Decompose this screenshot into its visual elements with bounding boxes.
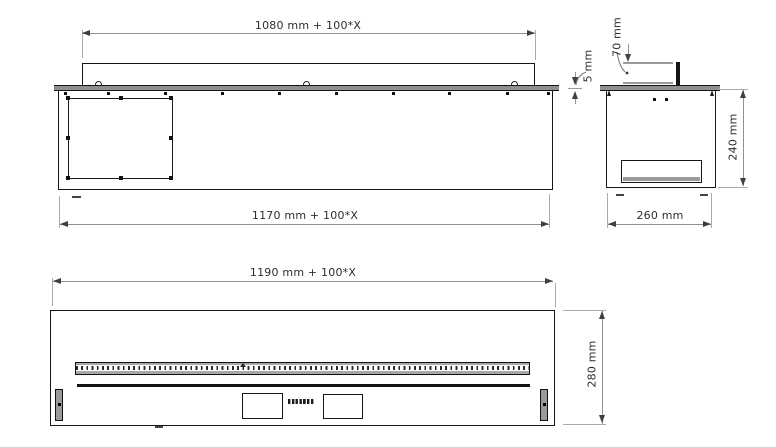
dimension-line-front-width [53, 281, 553, 282]
hinge-bump [95, 81, 102, 85]
access-panel [68, 98, 173, 179]
arrowhead-up [740, 90, 746, 98]
flame-port-row [76, 366, 529, 370]
arrowhead-right [541, 221, 549, 227]
foot-mark [616, 194, 624, 196]
arrowhead-down [740, 178, 746, 186]
foot-mark [72, 196, 81, 198]
screen-plate-top [623, 62, 673, 64]
panel-screw [169, 96, 173, 100]
screw-dot [506, 92, 509, 95]
screw-dot [64, 92, 67, 95]
dim-label-body-width: 1170 mm + 100*X [252, 209, 358, 222]
control-box-right [323, 394, 363, 419]
dim-label-flange-thickness: 5 mm [582, 50, 595, 83]
dim-label-body-depth: 260 mm [636, 209, 683, 222]
dim-label-body-height: 240 mm [727, 113, 740, 160]
screw-dot [164, 92, 167, 95]
dimension-line-lid-width [82, 33, 535, 34]
dim-label-top-offset: 70 mm [611, 17, 624, 57]
arrowhead-right [527, 30, 535, 36]
extension-line [535, 30, 536, 60]
arrowhead-left [82, 30, 90, 36]
screen-holder-bar [676, 62, 680, 87]
extension-line [718, 187, 748, 188]
screw-dot [335, 92, 338, 95]
extension-line [711, 193, 712, 228]
center-marker [240, 363, 246, 367]
extension-line [549, 194, 550, 228]
screw-dot [221, 92, 224, 95]
arrowhead-left [53, 278, 61, 284]
arrowhead-right [703, 221, 711, 227]
dim-label-front-width: 1190 mm + 100*X [250, 266, 356, 279]
brand-wordmark [288, 399, 314, 404]
weld-mark [710, 90, 714, 96]
panel-screw [119, 96, 123, 100]
dim-tick [568, 88, 582, 89]
extension-line [555, 283, 556, 307]
arrowhead-down [625, 54, 631, 62]
dimension-line-height [743, 90, 744, 186]
arrowhead-up [599, 311, 605, 319]
arrowhead-down [572, 77, 578, 85]
control-box-left [242, 393, 283, 419]
screw-dot [665, 98, 668, 101]
screen-plate-bottom [623, 82, 673, 84]
strip-shadow-line [77, 384, 530, 387]
screw-dot [547, 92, 550, 95]
slot-screw [58, 403, 61, 406]
dim-label-front-height: 280 mm [586, 340, 599, 387]
panel-screw [66, 136, 70, 140]
screw-dot [392, 92, 395, 95]
foot-mark [155, 426, 163, 428]
hinge-bump [511, 81, 518, 85]
panel-screw [169, 136, 173, 140]
burner-strip-edge [76, 363, 529, 365]
dim-label-lid-width: 1080 mm + 100*X [255, 19, 361, 32]
arrowhead-up [572, 91, 578, 99]
slot-screw [543, 403, 546, 406]
burner-strip [75, 362, 530, 375]
screw-dot [448, 92, 451, 95]
arrowhead-right [545, 278, 553, 284]
screw-dot [107, 92, 110, 95]
foot-mark [700, 194, 708, 196]
panel-screw [119, 176, 123, 180]
panel-screw [66, 176, 70, 180]
hinge-bump [303, 81, 310, 85]
extension-line [563, 424, 606, 425]
panel-screw [66, 96, 70, 100]
arrowhead-left [608, 221, 616, 227]
arrowhead-down [599, 415, 605, 423]
screw-dot [278, 92, 281, 95]
technical-drawing: 1080 mm + 100*X [0, 0, 776, 447]
panel-screw [169, 176, 173, 180]
tray-base [623, 177, 700, 181]
dimension-line-front-height [602, 311, 603, 424]
screw-dot [653, 98, 656, 101]
dimension-line-depth [608, 224, 711, 225]
burner-strip-shadow [76, 371, 529, 374]
weld-mark [607, 90, 611, 96]
arrowhead-left [60, 221, 68, 227]
dimension-line-body-width [60, 224, 549, 225]
